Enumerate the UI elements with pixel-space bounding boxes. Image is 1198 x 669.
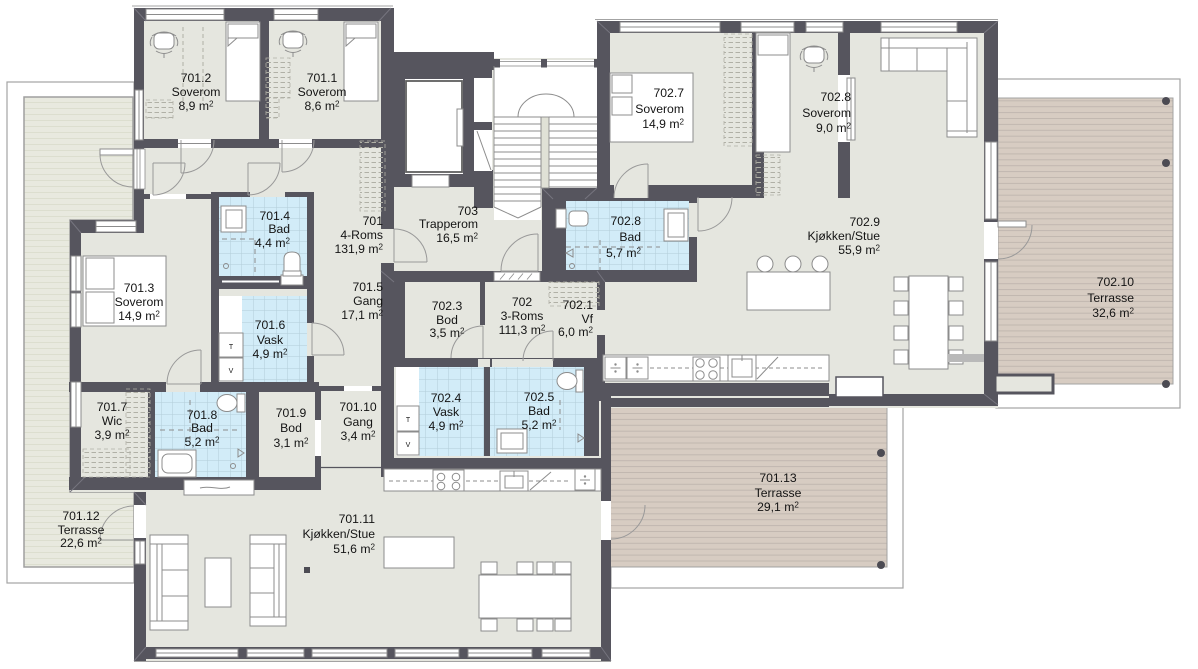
svg-text:Soverom: Soverom: [802, 106, 851, 120]
svg-text:701.7: 701.7: [97, 400, 128, 414]
svg-text:703: 703: [458, 204, 479, 218]
svg-text:3,4 m2: 3,4 m2: [341, 429, 376, 443]
svg-text:Vask: Vask: [257, 333, 284, 347]
svg-text:T: T: [406, 417, 411, 424]
svg-text:Bad: Bad: [268, 222, 290, 236]
svg-text:4,9 m2: 4,9 m2: [253, 347, 288, 361]
svg-text:Vf: Vf: [581, 312, 593, 326]
svg-text:4,9 m2: 4,9 m2: [429, 419, 464, 433]
svg-text:701.13: 701.13: [759, 471, 796, 485]
svg-text:29,1 m2: 29,1 m2: [757, 500, 799, 514]
svg-text:16,5 m2: 16,5 m2: [436, 231, 478, 245]
svg-text:Bad: Bad: [619, 230, 641, 244]
svg-text:17,1 m2: 17,1 m2: [341, 308, 383, 322]
svg-text:32,6 m2: 32,6 m2: [1092, 306, 1134, 320]
svg-text:Soverom: Soverom: [635, 102, 684, 116]
svg-text:3,9 m2: 3,9 m2: [95, 428, 130, 442]
svg-text:Bad: Bad: [528, 404, 550, 418]
svg-text:701.4: 701.4: [260, 209, 291, 223]
svg-text:3,5 m2: 3,5 m2: [430, 326, 465, 340]
svg-text:111,3 m2: 111,3 m2: [499, 323, 546, 337]
svg-text:4-Roms: 4-Roms: [340, 228, 383, 242]
svg-text:701.9: 701.9: [276, 406, 307, 420]
svg-text:701.1: 701.1: [307, 71, 338, 85]
svg-text:T: T: [229, 344, 234, 351]
svg-text:8,9 m2: 8,9 m2: [179, 99, 214, 113]
svg-text:5,2 m2: 5,2 m2: [185, 435, 220, 449]
svg-text:22,6 m2: 22,6 m2: [60, 536, 102, 550]
svg-text:702: 702: [512, 295, 533, 309]
svg-text:702.5: 702.5: [524, 390, 555, 404]
svg-text:Bod: Bod: [436, 313, 458, 327]
svg-text:Vask: Vask: [433, 405, 460, 419]
svg-text:Soverom: Soverom: [115, 295, 164, 309]
svg-text:702.10: 702.10: [1097, 275, 1134, 289]
svg-text:Gang: Gang: [343, 415, 373, 429]
svg-text:702.9: 702.9: [850, 215, 881, 229]
svg-text:701.10: 701.10: [339, 400, 376, 414]
svg-text:3-Roms: 3-Roms: [501, 309, 544, 323]
svg-text:702.8: 702.8: [611, 214, 642, 228]
svg-text:702.8: 702.8: [821, 90, 852, 104]
svg-text:Bod: Bod: [280, 421, 302, 435]
svg-text:Trapperom: Trapperom: [419, 217, 478, 231]
svg-text:131,9 m2: 131,9 m2: [334, 242, 383, 256]
svg-text:701.3: 701.3: [124, 281, 155, 295]
svg-text:702.1: 702.1: [563, 298, 594, 312]
svg-text:701.12: 701.12: [62, 509, 99, 523]
svg-text:702.3: 702.3: [432, 299, 463, 313]
svg-text:Bad: Bad: [191, 421, 213, 435]
svg-text:14,9 m2: 14,9 m2: [642, 117, 684, 131]
svg-text:Gang: Gang: [353, 294, 383, 308]
svg-text:V: V: [406, 442, 411, 449]
svg-text:5,7 m2: 5,7 m2: [606, 246, 641, 260]
svg-text:702.7: 702.7: [654, 86, 685, 100]
svg-text:51,6 m2: 51,6 m2: [333, 542, 375, 556]
svg-text:3,1 m2: 3,1 m2: [274, 436, 309, 450]
svg-text:Terrasse: Terrasse: [58, 523, 105, 537]
svg-text:5,2 m2: 5,2 m2: [522, 418, 557, 432]
svg-text:Soverom: Soverom: [298, 85, 347, 99]
svg-text:Wic: Wic: [102, 414, 122, 428]
svg-text:701.11: 701.11: [339, 512, 376, 526]
svg-text:8,6 m2: 8,6 m2: [305, 99, 340, 113]
svg-text:701: 701: [363, 214, 384, 228]
svg-text:701.5: 701.5: [353, 280, 384, 294]
svg-text:55,9 m2: 55,9 m2: [838, 243, 880, 257]
svg-text:Terrasse: Terrasse: [1087, 291, 1134, 305]
svg-text:Soverom: Soverom: [172, 85, 221, 99]
svg-text:Terrasse: Terrasse: [755, 486, 802, 500]
svg-text:701.8: 701.8: [187, 408, 218, 422]
svg-text:14,9 m2: 14,9 m2: [118, 309, 160, 323]
svg-text:Kjøkken/Stue: Kjøkken/Stue: [808, 229, 881, 243]
svg-text:701.2: 701.2: [181, 71, 212, 85]
svg-text:701.6: 701.6: [255, 318, 286, 332]
svg-text:9,0 m2: 9,0 m2: [816, 121, 851, 135]
svg-text:Kjøkken/Stue: Kjøkken/Stue: [303, 527, 376, 541]
svg-text:6,0 m2: 6,0 m2: [558, 325, 593, 339]
svg-text:702.4: 702.4: [431, 391, 462, 405]
svg-text:4,4 m2: 4,4 m2: [255, 236, 290, 250]
svg-text:V: V: [229, 368, 234, 375]
